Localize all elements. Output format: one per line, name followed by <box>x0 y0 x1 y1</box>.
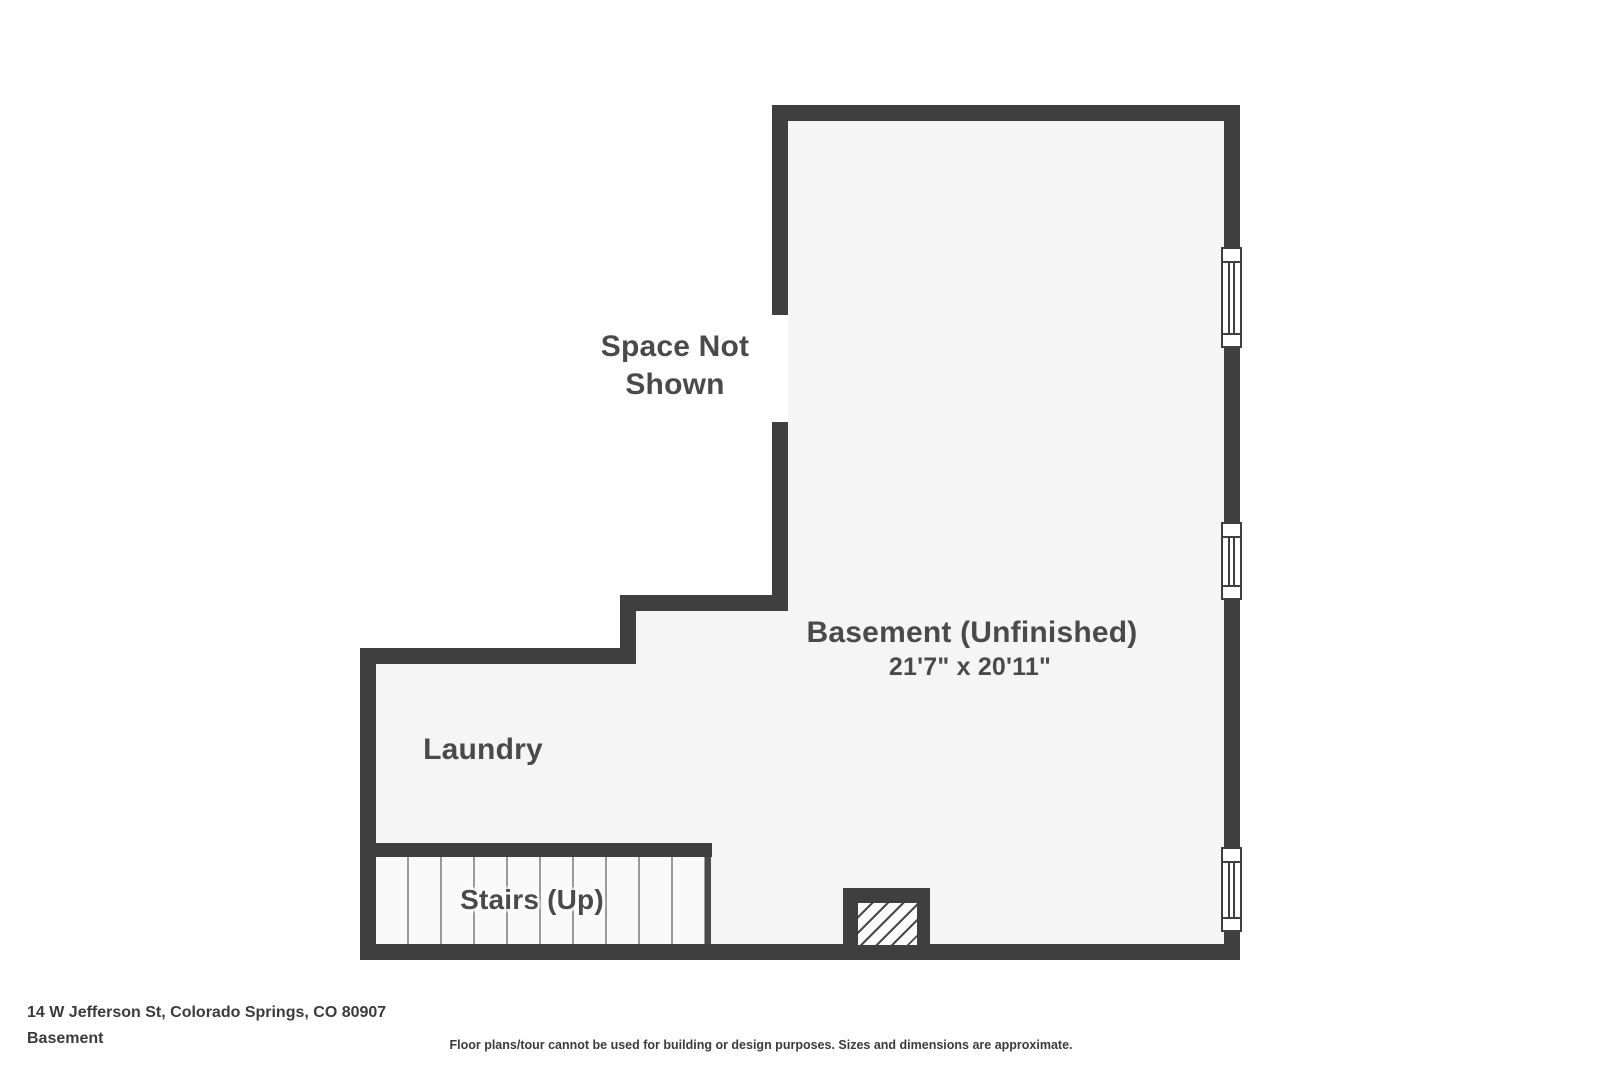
window-sill <box>1223 585 1240 598</box>
basement-floor-upper <box>788 121 1224 611</box>
wall-bottom <box>360 944 1240 960</box>
window-bottom <box>1221 847 1242 932</box>
label-space-not-shown: Space Not Shown <box>565 328 785 404</box>
window-sill <box>1223 333 1240 346</box>
footer-address: 14 W Jefferson St, Colorado Springs, CO … <box>27 1004 627 1022</box>
stairs-right-edge <box>705 857 711 944</box>
window-sill <box>1223 917 1240 930</box>
window-sill <box>1223 249 1240 263</box>
label-basement: Basement (Unfinished) <box>742 616 1202 650</box>
label-laundry: Laundry <box>383 733 583 767</box>
window-glass <box>1223 863 1240 917</box>
window-glass <box>1223 538 1240 585</box>
chimney-hatch <box>858 903 917 945</box>
wall-left-laundry <box>360 648 376 960</box>
window-middle <box>1221 522 1242 600</box>
wall-stairs-top <box>360 843 712 857</box>
wall-upper-horizontal <box>620 595 788 611</box>
footer-floor-name: Basement <box>27 1030 327 1048</box>
floor-plan: Space Not Shown Basement (Unfinished) 21… <box>0 0 1600 1067</box>
footer-disclaimer: Floor plans/tour cannot be used for buil… <box>400 1038 1122 1052</box>
wall-laundry-top <box>360 648 636 664</box>
window-sill <box>1223 524 1240 538</box>
wall-top <box>772 105 1240 121</box>
window-top <box>1221 247 1242 348</box>
window-glass <box>1223 263 1240 333</box>
label-basement-dimensions: 21'7" x 20'11" <box>770 653 1170 681</box>
label-stairs: Stairs (Up) <box>412 884 652 916</box>
window-sill <box>1223 849 1240 863</box>
